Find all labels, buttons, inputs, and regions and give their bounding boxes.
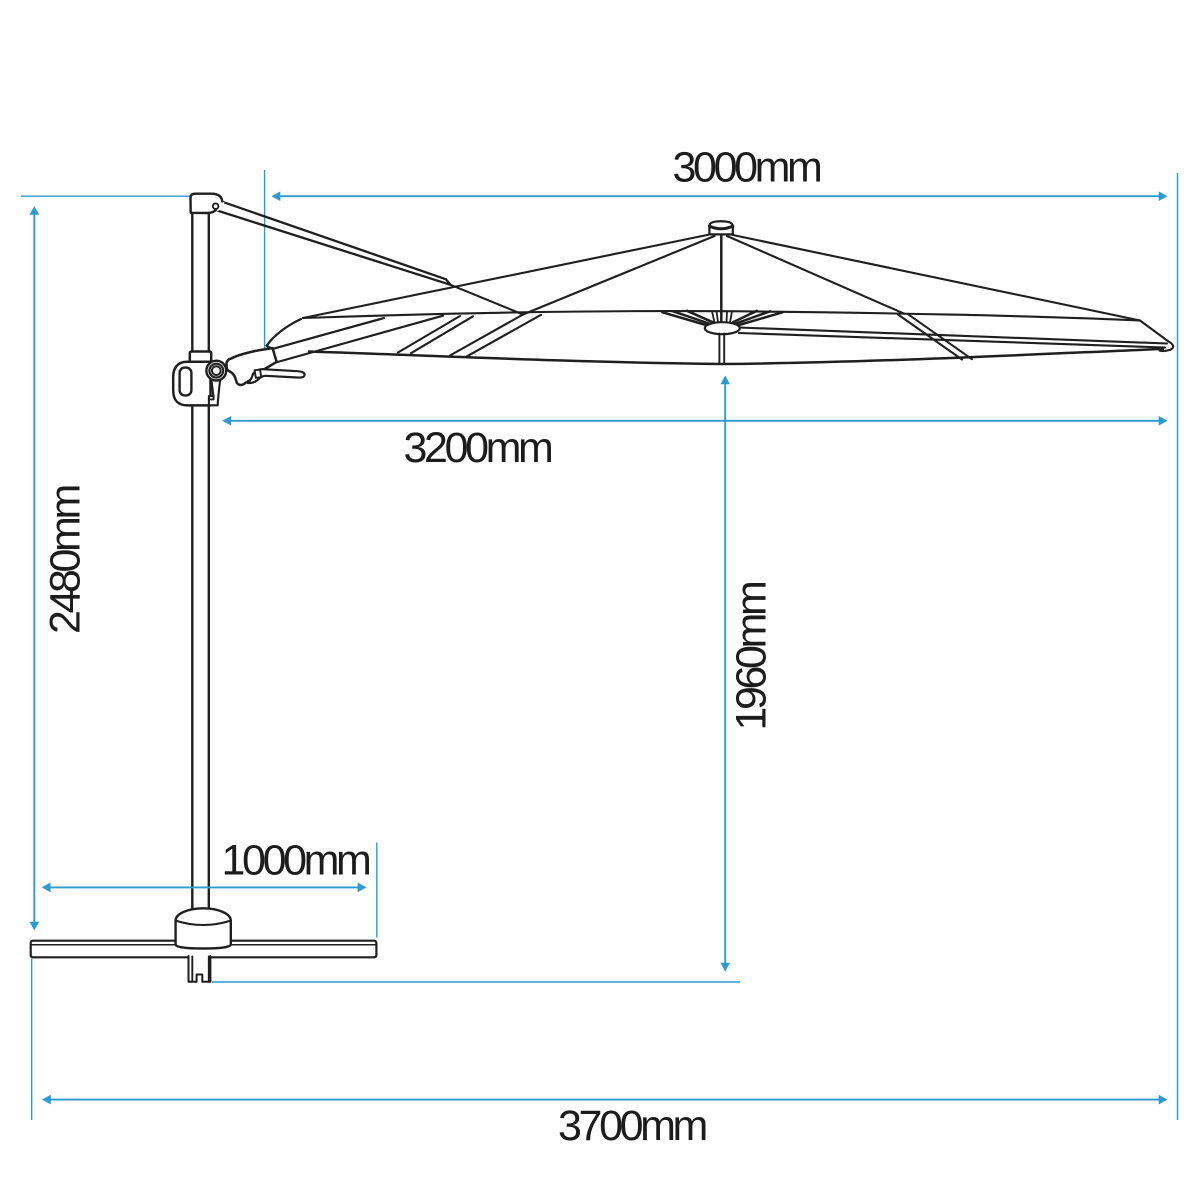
svg-text:1000mm: 1000mm [222,837,369,885]
svg-text:2480mm: 2480mm [42,487,90,634]
svg-text:1960mm: 1960mm [728,583,776,730]
svg-text:3700mm: 3700mm [558,1102,705,1150]
svg-text:3200mm: 3200mm [404,424,551,472]
svg-text:3000mm: 3000mm [673,144,820,192]
